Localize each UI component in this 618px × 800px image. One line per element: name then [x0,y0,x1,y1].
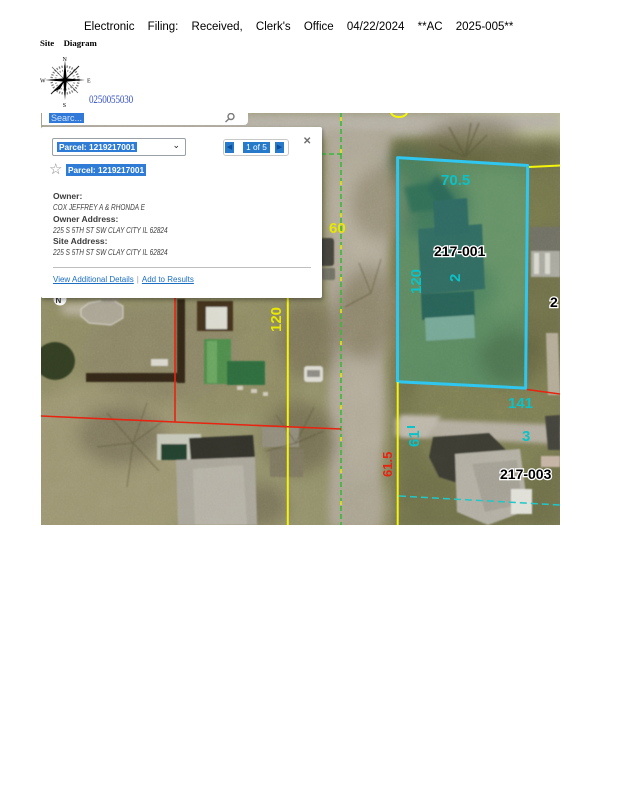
svg-text:120: 120 [268,307,285,332]
svg-text:W: W [40,79,46,85]
svg-text:70.5: 70.5 [441,172,470,189]
svg-text:N: N [63,57,68,63]
svg-text:3: 3 [522,428,530,445]
svg-text:60: 60 [329,220,346,237]
svg-text:61.5: 61.5 [380,452,395,477]
svg-text:120: 120 [408,269,425,294]
svg-text:61: 61 [406,430,423,447]
svg-text:E: E [87,79,91,85]
svg-text:2: 2 [447,274,464,282]
svg-text:217-001: 217-001 [434,243,486,259]
svg-text:141: 141 [508,395,533,412]
svg-text:S: S [63,103,66,108]
svg-text:2: 2 [550,294,558,310]
svg-text:217-003: 217-003 [500,466,552,482]
